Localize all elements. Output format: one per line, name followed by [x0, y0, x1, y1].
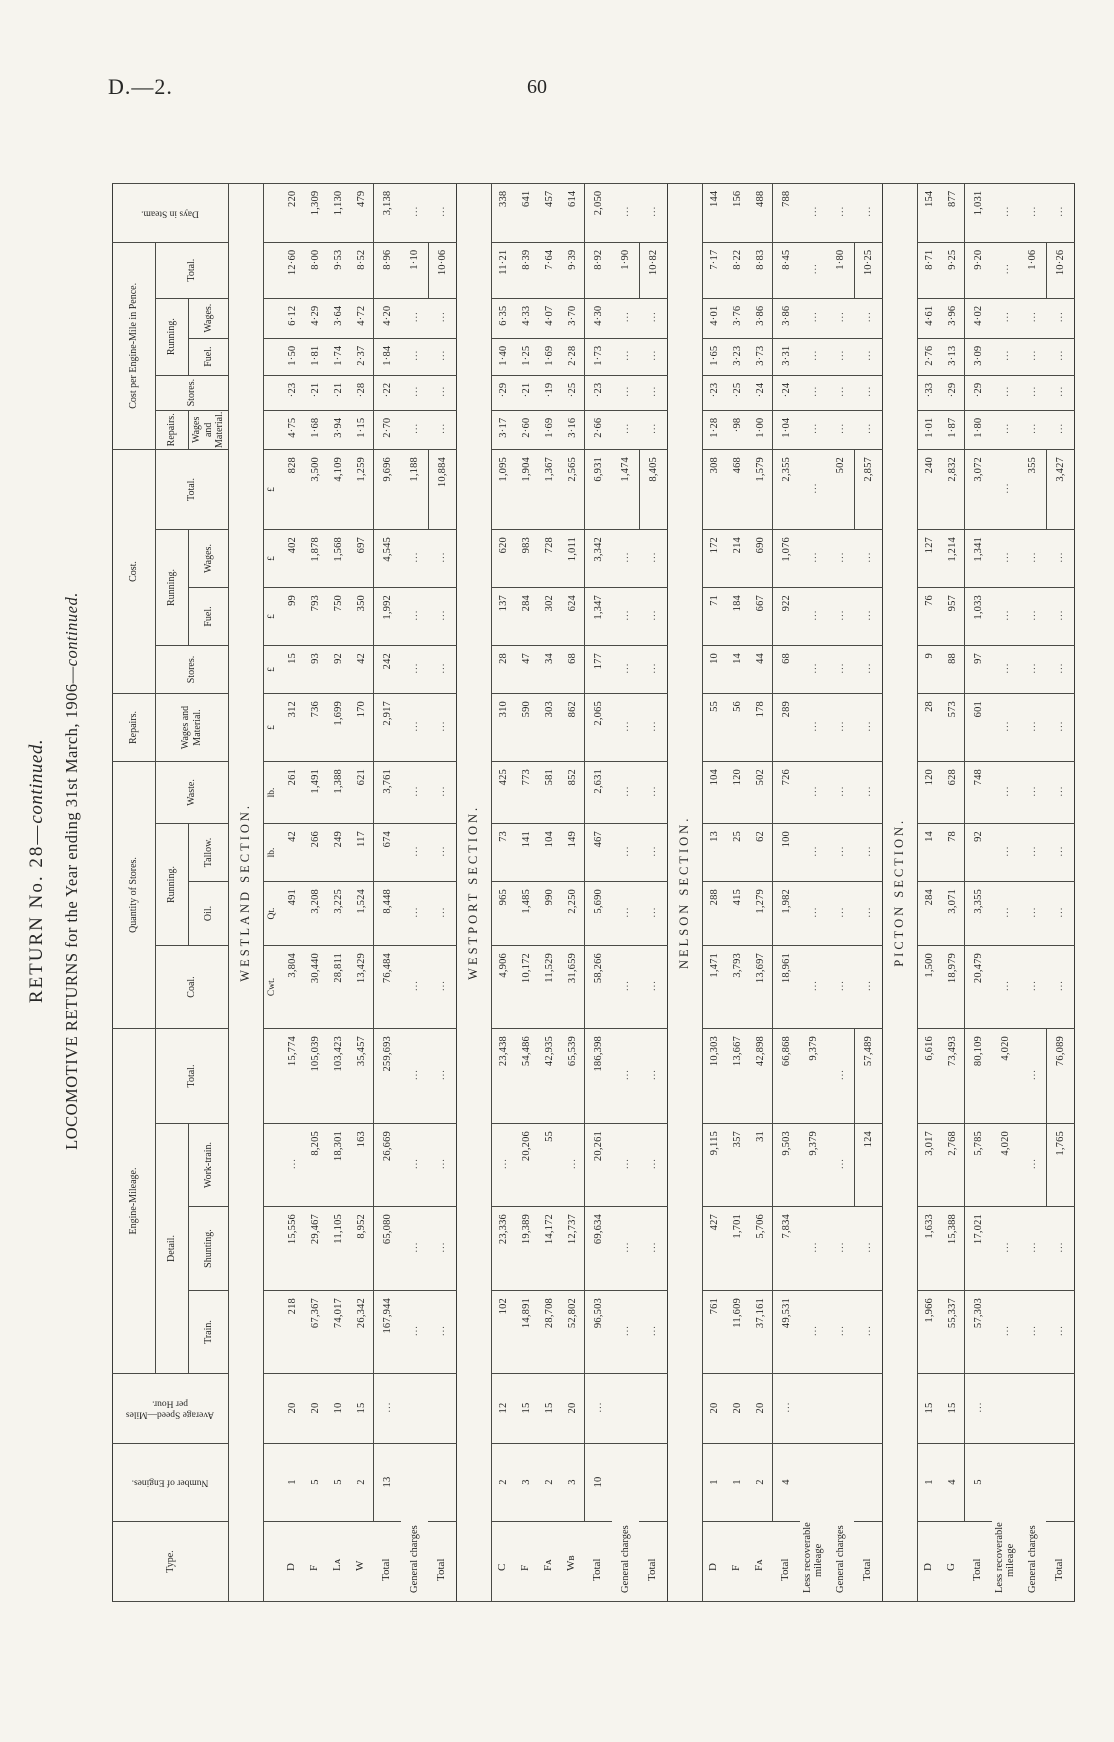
table-row: Total5...57,30317,0215,78580,10920,4793,…: [964, 183, 992, 1601]
table-row: Less recoverablemileage......4,0204,020.…: [992, 183, 1019, 1601]
cell-waste: 628: [941, 762, 965, 824]
cell-coal: ...: [428, 946, 456, 1029]
cell-waste: 1,491: [304, 762, 327, 824]
cell-repairs-cost: ...: [639, 694, 667, 762]
unit-coal: Cwt.: [263, 946, 281, 1029]
cell-waste: 120: [726, 762, 749, 824]
unit-repairs-pence: [263, 410, 281, 449]
cell-stores-cost: ...: [992, 646, 1019, 694]
cell-mileage-total: 6,616: [917, 1029, 941, 1124]
cell-total-cost: 8,405: [639, 450, 667, 530]
cell-stores-cost: 14: [726, 646, 749, 694]
cell-days-in-steam: 641: [515, 183, 538, 242]
cell-work-train: ...: [612, 1124, 640, 1207]
col-header-train: Train.: [189, 1291, 229, 1374]
cell-repairs-pence: 3·17: [491, 410, 515, 449]
cell-work-train: 1,765: [1046, 1124, 1074, 1207]
cell-repairs-cost: ...: [1019, 694, 1047, 762]
units-row: Cwt.Qt.lb.lb.£££££: [263, 183, 281, 1601]
cell-coal: ...: [401, 946, 429, 1029]
cell-engines: [1046, 1444, 1074, 1522]
cell-coal: ...: [827, 946, 855, 1029]
cell-shunting: 15,388: [941, 1207, 965, 1291]
cell-mileage-total: ...: [401, 1029, 429, 1124]
cell-wages-cost: 697: [350, 530, 374, 588]
cell-total-pence: ...: [800, 242, 827, 298]
col-header-total-pence: Total.: [156, 242, 229, 298]
cell-tallow: 249: [327, 824, 350, 882]
cell-waste: ...: [612, 762, 640, 824]
row-label: F: [726, 1522, 749, 1602]
cell-wages-cost: 1,341: [964, 530, 992, 588]
cell-oil: 3,208: [304, 882, 327, 946]
cell-wages-pence: ...: [854, 298, 882, 338]
unit-wages-pence: [263, 298, 281, 338]
cell-wages-cost: ...: [854, 530, 882, 588]
cell-train: ...: [612, 1291, 640, 1374]
cell-stores-pence: ·23: [281, 375, 304, 410]
cell-waste: 726: [772, 762, 800, 824]
cell-stores-pence: ·21: [304, 375, 327, 410]
cell-shunting: 15,556: [281, 1207, 304, 1291]
cell-oil: ...: [827, 882, 855, 946]
table-row: D1151,9661,6333,0176,6161,50028414120289…: [917, 183, 941, 1601]
unit-days-in-steam: [263, 183, 281, 242]
row-label: Total: [854, 1522, 882, 1602]
cell-wages-pence: ...: [612, 298, 640, 338]
cell-train: ...: [1019, 1291, 1047, 1374]
cell-shunting: 19,389: [515, 1207, 538, 1291]
cell-repairs-pence: ...: [1019, 410, 1047, 449]
cell-fuel-cost: 667: [749, 588, 773, 646]
cell-coal: ...: [612, 946, 640, 1029]
cell-coal: 13,697: [749, 946, 773, 1029]
cell-total-pence: 8·83: [749, 242, 773, 298]
cell-total-cost: 1,367: [538, 450, 561, 530]
cell-fuel-cost: ...: [827, 588, 855, 646]
cell-stores-pence: ...: [992, 375, 1019, 410]
cell-coal: ...: [1019, 946, 1047, 1029]
cell-speed: ...: [964, 1374, 992, 1444]
units-row-label: [263, 1522, 281, 1602]
cell-mileage-total: 73,493: [941, 1029, 965, 1124]
cell-waste: 104: [702, 762, 726, 824]
cell-coal: 3,793: [726, 946, 749, 1029]
cell-wages-pence: ...: [1019, 298, 1047, 338]
cell-oil: 3,225: [327, 882, 350, 946]
col-header-repairs-pence-wages-material: Wages and Material.: [189, 410, 229, 449]
cell-engines: 2: [538, 1444, 561, 1522]
cell-total-cost: 468: [726, 450, 749, 530]
cell-wages-cost: ...: [992, 530, 1019, 588]
table-row: Fᴀ21528,70814,1725542,93511,529990104581…: [538, 183, 561, 1601]
cell-repairs-pence: 1·00: [749, 410, 773, 449]
cell-total-pence: 9·25: [941, 242, 965, 298]
cell-repairs-pence: ...: [612, 410, 640, 449]
cell-repairs-pence: ...: [1046, 410, 1074, 449]
cell-total-cost: 355: [1019, 450, 1047, 530]
cell-days-in-steam: ...: [827, 183, 855, 242]
subgroup-header-running-cost: Running.: [156, 530, 189, 646]
cell-speed: 20: [561, 1374, 585, 1444]
table-row: Total......1,76576,089..................…: [1046, 183, 1074, 1601]
cell-total-pence: 8·00: [304, 242, 327, 298]
cell-total-cost: 2,565: [561, 450, 585, 530]
cell-speed: [827, 1374, 855, 1444]
cell-repairs-pence: ·98: [726, 410, 749, 449]
cell-speed: 20: [726, 1374, 749, 1444]
cell-tallow: 117: [350, 824, 374, 882]
cell-wages-pence: ...: [401, 298, 429, 338]
cell-mileage-total: 65,539: [561, 1029, 585, 1124]
cell-fuel-pence: 2·76: [917, 338, 941, 375]
cell-stores-cost: 68: [772, 646, 800, 694]
cell-stores-cost: ...: [612, 646, 640, 694]
cell-total-cost: 1,904: [515, 450, 538, 530]
cell-repairs-pence: 3·16: [561, 410, 585, 449]
cell-coal: 11,529: [538, 946, 561, 1029]
cell-speed: ...: [584, 1374, 612, 1444]
table-row: C21210223,336...23,4384,9069657342531028…: [491, 183, 515, 1601]
row-label: Total: [772, 1522, 800, 1602]
cell-repairs-cost: 56: [726, 694, 749, 762]
cell-stores-cost: 68: [561, 646, 585, 694]
cell-stores-pence: ·21: [327, 375, 350, 410]
unit-stores-pence: [263, 375, 281, 410]
cell-work-train: ...: [1019, 1124, 1047, 1207]
row-label: Wʙ: [561, 1522, 585, 1602]
cell-fuel-pence: ...: [827, 338, 855, 375]
cell-oil: 8,448: [373, 882, 401, 946]
cell-mileage-total: 66,868: [772, 1029, 800, 1124]
cell-days-in-steam: 877: [941, 183, 965, 242]
cell-work-train: 31: [749, 1124, 773, 1207]
cell-waste: ...: [639, 762, 667, 824]
row-label: Total: [584, 1522, 612, 1602]
cell-tallow: 149: [561, 824, 585, 882]
cell-stores-cost: 28: [491, 646, 515, 694]
col-header-wages-cost: Wages.: [189, 530, 229, 588]
cell-coal: 13,429: [350, 946, 374, 1029]
cell-speed: ...: [373, 1374, 401, 1444]
cell-stores-cost: ...: [800, 646, 827, 694]
cell-wages-pence: 4·20: [373, 298, 401, 338]
cell-stores-cost: ...: [854, 646, 882, 694]
cell-tallow: 78: [941, 824, 965, 882]
cell-fuel-cost: ...: [428, 588, 456, 646]
cell-stores-cost: ...: [827, 646, 855, 694]
cell-total-pence: 10·82: [639, 242, 667, 298]
cell-fuel-cost: 1,347: [584, 588, 612, 646]
cell-wages-cost: 1,568: [327, 530, 350, 588]
col-header-number-of-engines: Number of Engines.: [113, 1444, 229, 1522]
cell-repairs-pence: 4·75: [281, 410, 304, 449]
cell-stores-cost: ...: [401, 646, 429, 694]
cell-train: ...: [800, 1291, 827, 1374]
cell-repairs-pence: ...: [827, 410, 855, 449]
cell-shunting: 65,080: [373, 1207, 401, 1291]
cell-shunting: ...: [639, 1207, 667, 1291]
cell-train: 57,303: [964, 1291, 992, 1374]
cell-oil: 990: [538, 882, 561, 946]
cell-stores-pence: ·33: [917, 375, 941, 410]
cell-shunting: 5,706: [749, 1207, 773, 1291]
cell-fuel-cost: ...: [401, 588, 429, 646]
cell-mileage-total: ...: [428, 1029, 456, 1124]
cell-total-cost: 6,931: [584, 450, 612, 530]
cell-stores-pence: ...: [1019, 375, 1047, 410]
cell-shunting: ...: [992, 1207, 1019, 1291]
col-header-oil: Oil.: [189, 882, 229, 946]
cell-tallow: ...: [854, 824, 882, 882]
cell-stores-cost: 10: [702, 646, 726, 694]
cell-tallow: ...: [827, 824, 855, 882]
cell-engines: 1: [726, 1444, 749, 1522]
cell-work-train: 163: [350, 1124, 374, 1207]
cell-waste: 3,761: [373, 762, 401, 824]
unit-total-cost: £: [263, 450, 281, 530]
cell-speed: [800, 1374, 827, 1444]
cell-shunting: 69,634: [584, 1207, 612, 1291]
row-label: F: [304, 1522, 327, 1602]
table-row: Total13...167,94465,08026,669259,69376,4…: [373, 183, 401, 1601]
cell-repairs-pence: 1·87: [941, 410, 965, 449]
cell-oil: ...: [1046, 882, 1074, 946]
cell-total-pence: 1·10: [401, 242, 429, 298]
col-header-shunting: Shunting.: [189, 1207, 229, 1291]
rotated-table-area: RETURN No. 28—continued. LOCOMOTIVE RETU…: [0, 0, 1114, 1742]
cell-days-in-steam: 154: [917, 183, 941, 242]
cell-total-cost: 9,696: [373, 450, 401, 530]
cell-coal: 1,471: [702, 946, 726, 1029]
cell-repairs-cost: ...: [992, 694, 1019, 762]
cell-wages-pence: 4·30: [584, 298, 612, 338]
cell-fuel-pence: 1·40: [491, 338, 515, 375]
section-heading: PICTON SECTION.: [882, 183, 917, 1601]
cell-train: 52,802: [561, 1291, 585, 1374]
cell-coal: ...: [1046, 946, 1074, 1029]
cell-work-train: 5,785: [964, 1124, 992, 1207]
cell-repairs-cost: 178: [749, 694, 773, 762]
cell-repairs-pence: 1·68: [304, 410, 327, 449]
cell-stores-pence: ·24: [772, 375, 800, 410]
cell-waste: ...: [428, 762, 456, 824]
cell-oil: 3,071: [941, 882, 965, 946]
cell-speed: 10: [327, 1374, 350, 1444]
cell-stores-pence: ...: [401, 375, 429, 410]
cell-wages-cost: ...: [800, 530, 827, 588]
row-label: Less recoverablemileage: [992, 1444, 1019, 1602]
cell-train: ...: [854, 1291, 882, 1374]
cell-repairs-cost: 289: [772, 694, 800, 762]
row-label: General charges: [827, 1444, 855, 1602]
cell-engines: 2: [491, 1444, 515, 1522]
cell-shunting: 17,021: [964, 1207, 992, 1291]
cell-repairs-pence: 1·15: [350, 410, 374, 449]
row-label: Total: [1046, 1522, 1074, 1602]
cell-fuel-cost: ...: [800, 588, 827, 646]
col-header-fuel-pence: Fuel.: [189, 338, 229, 375]
section-heading: NELSON SECTION.: [667, 183, 702, 1601]
cell-work-train: 3,017: [917, 1124, 941, 1207]
cell-repairs-cost: 55: [702, 694, 726, 762]
cell-coal: 30,440: [304, 946, 327, 1029]
cell-fuel-pence: ...: [800, 338, 827, 375]
table-header: Type. Number of Engines. Average Speed—M…: [113, 183, 229, 1601]
cell-speed: [401, 1374, 429, 1444]
cell-tallow: 42: [281, 824, 304, 882]
cell-stores-cost: 42: [350, 646, 374, 694]
section-heading-row: WESTPORT SECTION.: [456, 183, 491, 1601]
cell-waste: ...: [827, 762, 855, 824]
cell-engines: 13: [373, 1444, 401, 1522]
cell-fuel-pence: ...: [854, 338, 882, 375]
cell-train: 761: [702, 1291, 726, 1374]
cell-repairs-cost: 590: [515, 694, 538, 762]
section-heading-row: WESTLAND SECTION.: [228, 183, 263, 1601]
subgroup-header-running-stores: Running.: [156, 824, 189, 946]
cell-coal: ...: [992, 946, 1019, 1029]
cell-coal: 28,811: [327, 946, 350, 1029]
row-label: General charges: [1019, 1444, 1047, 1602]
cell-days-in-steam: 156: [726, 183, 749, 242]
cell-stores-pence: ·25: [561, 375, 585, 410]
cell-wages-pence: 4·29: [304, 298, 327, 338]
cell-waste: ...: [854, 762, 882, 824]
row-label: Fᴀ: [538, 1522, 561, 1602]
cell-waste: 502: [749, 762, 773, 824]
cell-total-cost: 1,188: [401, 450, 429, 530]
col-header-coal: Coal.: [156, 946, 229, 1029]
cell-shunting: 1,633: [917, 1207, 941, 1291]
cell-total-pence: 10·25: [854, 242, 882, 298]
row-label: General charges: [401, 1444, 429, 1602]
cell-speed: 20: [702, 1374, 726, 1444]
cell-days-in-steam: 614: [561, 183, 585, 242]
cell-fuel-cost: 750: [327, 588, 350, 646]
cell-work-train: 2,768: [941, 1124, 965, 1207]
cell-total-cost: 308: [702, 450, 726, 530]
cell-oil: ...: [1019, 882, 1047, 946]
row-label: Total: [373, 1522, 401, 1602]
table-row: D12021815,556...15,7743,8044914226131215…: [281, 183, 304, 1601]
cell-coal: 31,659: [561, 946, 585, 1029]
cell-total-pence: 7·17: [702, 242, 726, 298]
cell-work-train: 9,115: [702, 1124, 726, 1207]
cell-stores-pence: ...: [800, 375, 827, 410]
cell-stores-pence: ...: [612, 375, 640, 410]
cell-wages-cost: 127: [917, 530, 941, 588]
cell-total-cost: 502: [827, 450, 855, 530]
unit-waste: lb.: [263, 762, 281, 824]
cell-tallow: ...: [1019, 824, 1047, 882]
cell-wages-pence: ...: [827, 298, 855, 338]
cell-speed: 12: [491, 1374, 515, 1444]
cell-days-in-steam: 144: [702, 183, 726, 242]
cell-work-train: ...: [827, 1124, 855, 1207]
cell-repairs-cost: ...: [428, 694, 456, 762]
cell-mileage-total: 103,423: [327, 1029, 350, 1124]
cell-wages-cost: ...: [1046, 530, 1074, 588]
unit-fuel-cost: £: [263, 588, 281, 646]
cell-fuel-pence: 1·69: [538, 338, 561, 375]
cell-total-cost: 2,832: [941, 450, 965, 530]
cell-fuel-pence: 1·81: [304, 338, 327, 375]
cell-engines: [854, 1444, 882, 1522]
cell-fuel-cost: 137: [491, 588, 515, 646]
cell-shunting: 23,336: [491, 1207, 515, 1291]
cell-oil: ...: [401, 882, 429, 946]
cell-shunting: ...: [401, 1207, 429, 1291]
cell-repairs-cost: 862: [561, 694, 585, 762]
cell-wages-cost: 402: [281, 530, 304, 588]
cell-train: 1,966: [917, 1291, 941, 1374]
cell-repairs-pence: 1·80: [964, 410, 992, 449]
cell-total-cost: 3,427: [1046, 450, 1074, 530]
table-row: General charges.........................…: [1019, 183, 1047, 1601]
cell-work-train: ...: [401, 1124, 429, 1207]
cell-waste: 773: [515, 762, 538, 824]
cell-coal: 1,500: [917, 946, 941, 1029]
cell-oil: ...: [639, 882, 667, 946]
cell-work-train: 357: [726, 1124, 749, 1207]
cell-fuel-pence: 1·50: [281, 338, 304, 375]
cell-wages-cost: ...: [428, 530, 456, 588]
cell-wages-pence: ...: [800, 298, 827, 338]
cell-train: ...: [428, 1291, 456, 1374]
cell-oil: 965: [491, 882, 515, 946]
cell-speed: [1019, 1374, 1047, 1444]
cell-fuel-cost: ...: [1046, 588, 1074, 646]
cell-speed: 15: [917, 1374, 941, 1444]
cell-waste: ...: [992, 762, 1019, 824]
cell-speed: 20: [281, 1374, 304, 1444]
unit-repairs-cost: £: [263, 694, 281, 762]
cell-total-pence: 8·71: [917, 242, 941, 298]
cell-work-train: 20,206: [515, 1124, 538, 1207]
cell-fuel-pence: 3·09: [964, 338, 992, 375]
cell-stores-cost: ...: [1019, 646, 1047, 694]
cell-wages-pence: ...: [992, 298, 1019, 338]
cell-stores-pence: ...: [827, 375, 855, 410]
row-label: D: [917, 1522, 941, 1602]
cell-tallow: ...: [401, 824, 429, 882]
cell-total-cost: 4,109: [327, 450, 350, 530]
table-row: D1207614279,11510,3031,47128813104551071…: [702, 183, 726, 1601]
group-header-cost-per-mile: Cost per Engine-Mile in Pence.: [113, 242, 156, 449]
cell-waste: 1,388: [327, 762, 350, 824]
cell-train: 55,337: [941, 1291, 965, 1374]
cell-stores-pence: ·22: [373, 375, 401, 410]
cell-speed: 20: [304, 1374, 327, 1444]
cell-repairs-cost: 28: [917, 694, 941, 762]
table-row: W21526,3428,95216335,45713,4291,52411762…: [350, 183, 374, 1601]
cell-stores-pence: ...: [428, 375, 456, 410]
cell-wages-pence: 4·01: [702, 298, 726, 338]
cell-wages-pence: 6·12: [281, 298, 304, 338]
cell-wages-cost: 3,342: [584, 530, 612, 588]
cell-oil: 1,524: [350, 882, 374, 946]
cell-work-train: 4,020: [992, 1124, 1019, 1207]
cell-wages-cost: ...: [401, 530, 429, 588]
locomotive-returns-table: Type. Number of Engines. Average Speed—M…: [112, 183, 1075, 1602]
unit-total-pence: [263, 242, 281, 298]
cell-stores-pence: ...: [1046, 375, 1074, 410]
cell-total-cost: 1,259: [350, 450, 374, 530]
cell-engines: 2: [350, 1444, 374, 1522]
cell-engines: 2: [749, 1444, 773, 1522]
cell-work-train: 20,261: [584, 1124, 612, 1207]
